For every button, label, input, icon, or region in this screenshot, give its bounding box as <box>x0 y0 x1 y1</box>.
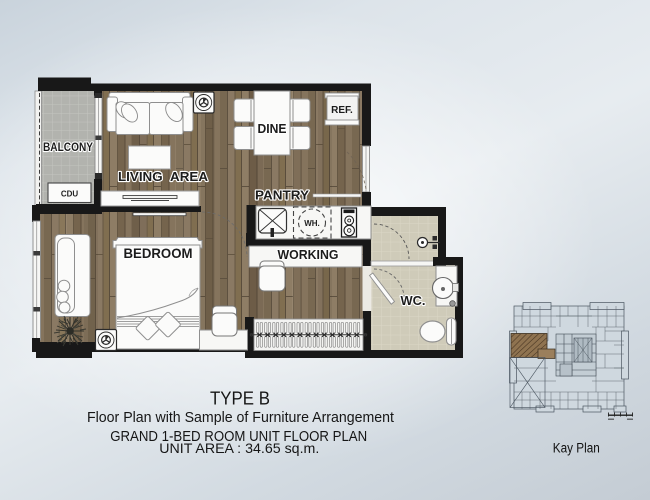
svg-text:Floor Plan with Sample of Furn: Floor Plan with Sample of Furniture Arra… <box>87 409 395 426</box>
svg-text:DINE: DINE <box>258 121 287 136</box>
svg-text:CDU: CDU <box>61 190 79 199</box>
svg-text:REF.: REF. <box>331 105 353 116</box>
svg-text:WH.: WH. <box>304 219 320 228</box>
svg-text:Kay Plan: Kay Plan <box>553 441 600 456</box>
svg-text:BALCONY: BALCONY <box>43 142 93 154</box>
svg-text:WC.: WC. <box>401 293 426 308</box>
svg-text:UNIT AREA : 34.65 sq.m.: UNIT AREA : 34.65 sq.m. <box>159 440 319 456</box>
svg-text:BEDROOM: BEDROOM <box>124 245 193 261</box>
svg-text:WORKING: WORKING <box>278 247 339 262</box>
svg-text:TYPE B: TYPE B <box>210 389 270 409</box>
svg-text:PANTRY: PANTRY <box>255 188 309 203</box>
svg-text:LIVING AREA: LIVING AREA <box>118 169 209 184</box>
